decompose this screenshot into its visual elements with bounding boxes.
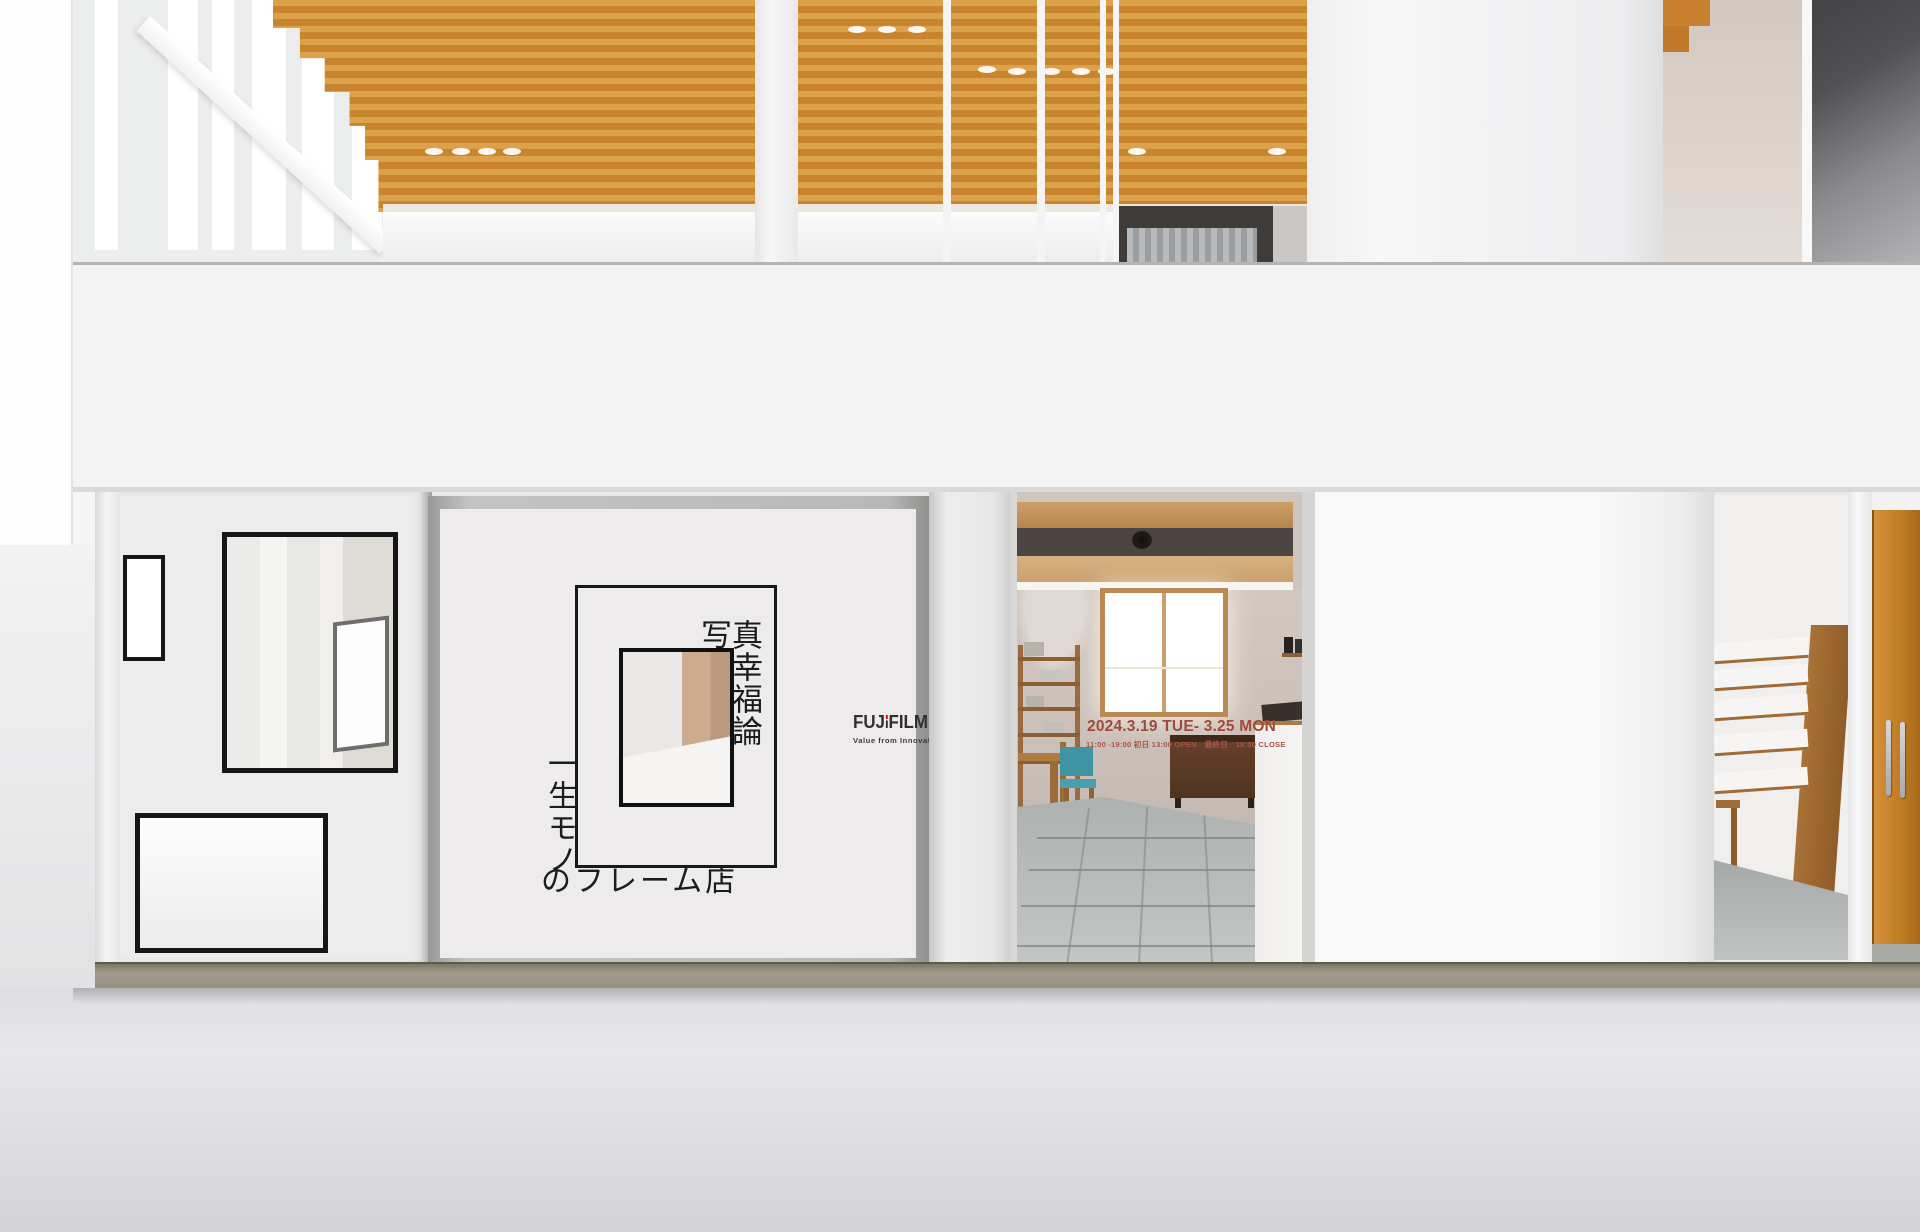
wood-step-block [1663,26,1689,52]
ladder-shelf [1018,733,1080,737]
sideboard-leg [1175,798,1181,808]
small-frame [1284,637,1293,653]
upper-pillar [1307,0,1663,262]
corner-white-sliver [1802,0,1812,262]
dark-corner-volume [1812,0,1920,262]
curtain [1127,228,1257,262]
ceiling-light-icon [978,66,996,73]
upper-mullion [943,0,951,262]
ladder-shelf [1018,707,1080,711]
display-window-small [123,555,165,661]
ceiling-light-icon [503,148,521,155]
curtain-box [1118,206,1273,262]
above-door-wall [1872,492,1920,510]
tilted-shelf [1714,694,1809,722]
interior-picture-frame [333,616,389,753]
door-frame-right [1302,492,1315,964]
ceiling-light-icon [908,26,926,33]
shelf-item [1026,696,1044,707]
fujifilm-wordmark: FUJFILM [853,712,938,733]
mid-wall-sliver [929,492,1010,962]
ground-pillar [1315,492,1715,962]
shop-doorway: 2024.3.19 TUE- 3.25 MON 11:00 -19:00 初日 … [1010,492,1315,964]
wooden-door [1872,510,1920,944]
logo-text-prefix: FUJ [853,712,885,732]
sign-photo-frame [619,648,734,807]
ceiling-light-icon [425,148,443,155]
display-window-large [222,532,398,773]
ceiling-light-icon [848,26,866,33]
event-date-range: 2024.3.19 TUE- 3.25 MON [1087,718,1276,736]
storefront-render: 写 真幸福論 一生モノ のフレーム店 FUJFILM Value from In… [0,0,1920,1232]
upper-mullion [1113,0,1119,262]
grout-line [1138,807,1148,964]
grout-line [1066,808,1090,964]
tilted-shelf [1714,637,1809,665]
grout-line [1203,807,1213,964]
display-window-low [135,813,328,953]
sign-kanji-side: 一生モノ [544,748,574,876]
door-handle [1900,722,1905,798]
photo-pedestal [623,652,730,803]
upper-mullion [1037,0,1045,262]
sideboard-leg [1248,798,1254,808]
ceiling-light-icon [1128,148,1146,155]
sign-kanji-bottom: のフレーム店 [541,867,738,897]
curtain-side-wall [1273,206,1307,262]
shelf-item [1040,670,1062,682]
shelf-item [1024,642,1044,656]
ceiling-light-icon [478,148,496,155]
tilted-shelf [1714,664,1809,692]
logo-text-suffix: FILM [888,712,927,732]
white-counter [1255,721,1305,964]
upper-column-wide [755,0,798,262]
ladder-shelf [1018,657,1080,661]
ceiling-light-icon [1268,148,1286,155]
ceiling-light-icon [878,26,896,33]
stool-top [1716,800,1740,808]
below-door-floor [1872,944,1920,962]
sign-kanji-column: 真幸福論 [729,619,760,747]
ladder-rail [1018,645,1023,812]
left-column [95,492,120,962]
left-ground [0,545,95,990]
fascia-band [73,262,1920,492]
chair-seat [1060,779,1096,788]
building-ground-shadow [73,988,1920,1004]
ceiling-light-icon [1008,68,1026,75]
tilted-shelf [1714,767,1809,795]
event-hours: 11:00 -19:00 初日 13:00 OPEN 最終日 18:00 CLO… [1086,739,1286,750]
chair-back [1060,747,1093,776]
concrete-plinth [73,962,1920,990]
wood-step-block [1663,0,1710,26]
right-opening [1714,495,1848,960]
ground-plane [0,988,1920,1232]
ceiling-light-icon [452,148,470,155]
upper-mullion [1100,0,1106,262]
balcony-railing [383,212,1118,262]
ceiling-light-icon [1072,68,1090,75]
tilted-shelf [1714,729,1809,757]
door-handle [1886,720,1891,796]
ladder-shelf [1018,682,1080,686]
right-mullion [1848,492,1872,962]
shelf-item [1044,722,1064,733]
